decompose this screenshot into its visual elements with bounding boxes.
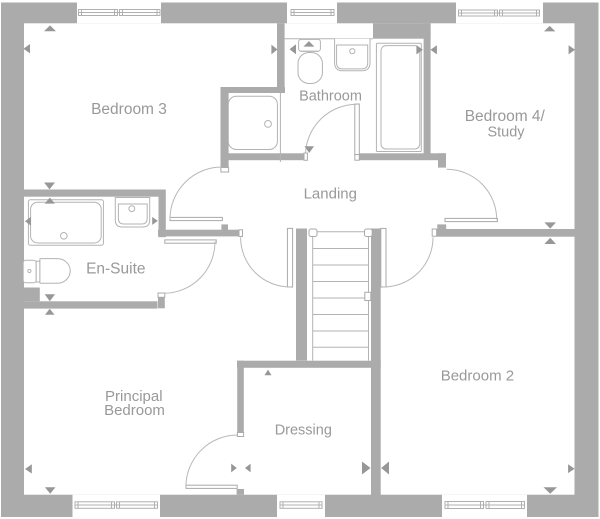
svg-text:Bedroom 3: Bedroom 3 xyxy=(91,101,167,118)
svg-text:Landing: Landing xyxy=(304,186,357,203)
svg-text:Bathroom: Bathroom xyxy=(299,89,362,105)
svg-text:En-Suite: En-Suite xyxy=(86,261,145,278)
svg-text:Dressing: Dressing xyxy=(275,423,332,439)
svg-text:Study: Study xyxy=(487,125,525,141)
svg-text:Bedroom 4/: Bedroom 4/ xyxy=(465,108,546,125)
svg-text:Bedroom 2: Bedroom 2 xyxy=(441,368,514,385)
svg-text:Bedroom: Bedroom xyxy=(104,402,165,419)
